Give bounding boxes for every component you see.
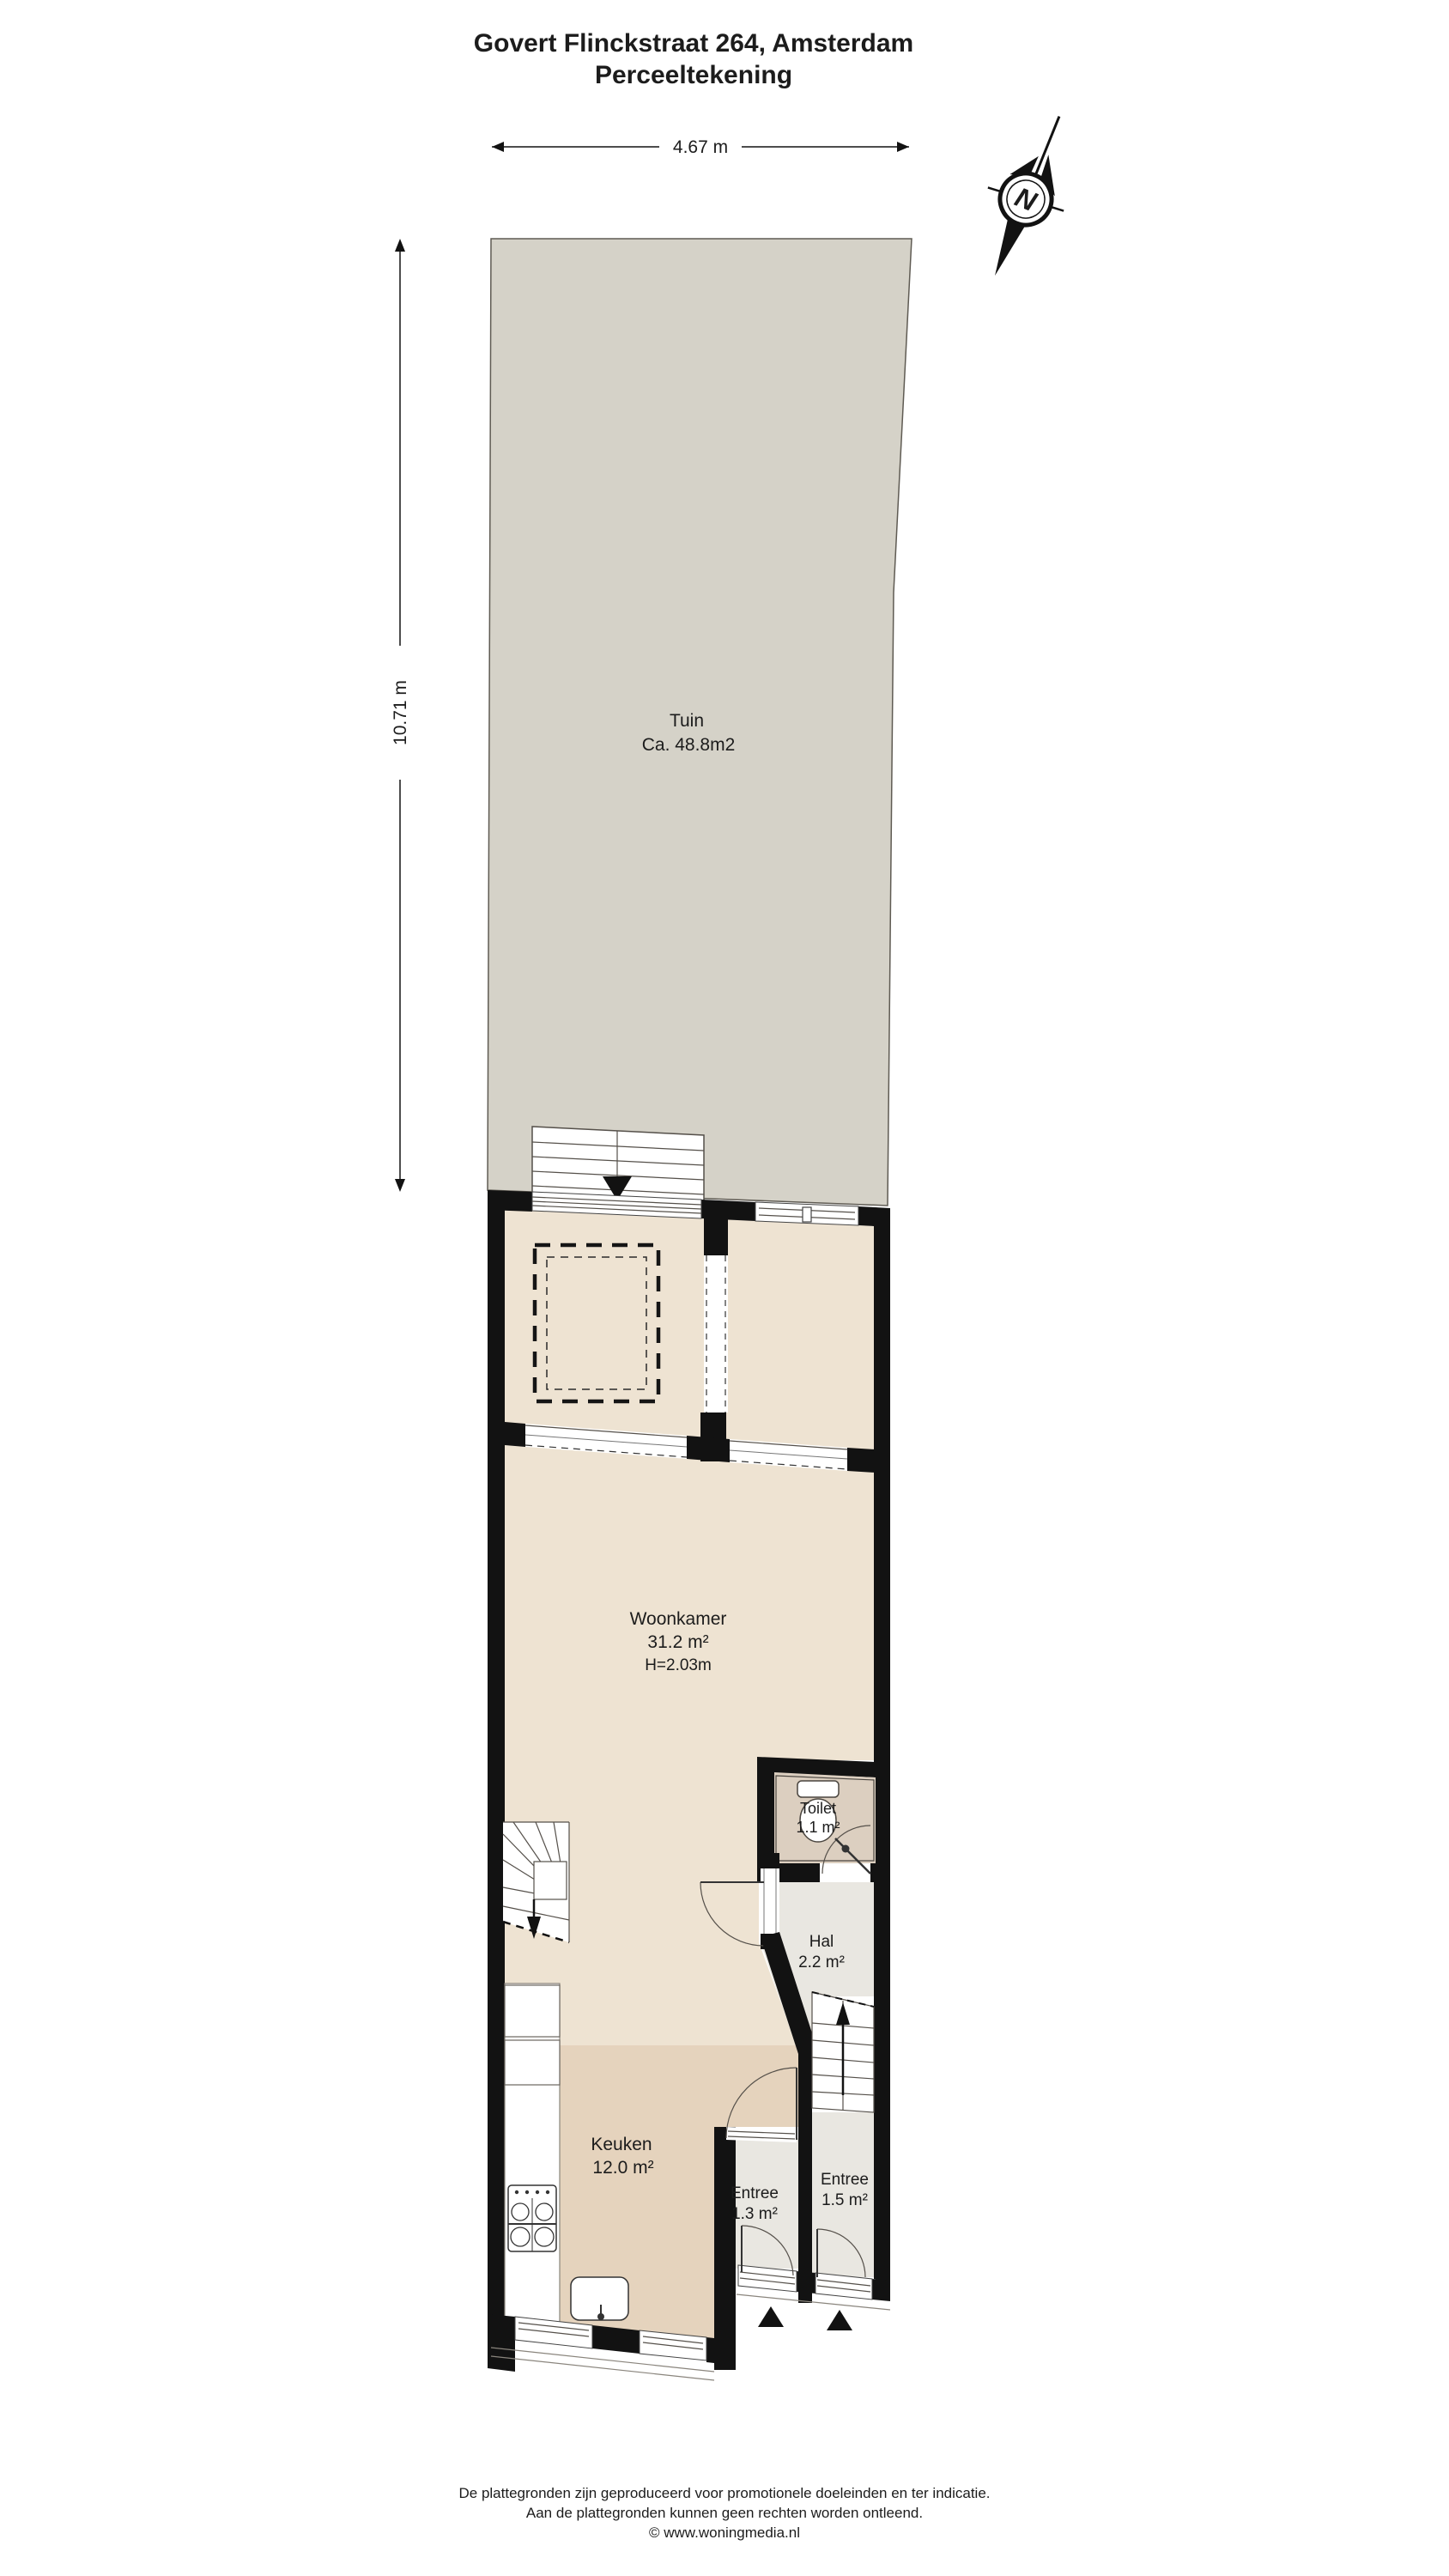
right-wall — [874, 1207, 890, 2282]
plot-depth-dimension: 10.71 m — [391, 239, 410, 1192]
toilet-name-label: Toilet — [800, 1800, 836, 1817]
stove-icon — [508, 2185, 556, 2251]
page-title: Govert Flinckstraat 264, Amsterdam — [474, 29, 913, 58]
entree-left-floor — [736, 2138, 798, 2269]
hal-name-label: Hal — [809, 1933, 834, 1951]
left-wall — [488, 1190, 505, 2318]
floor-plan-svg: Govert Flinckstraat 264, Amsterdam Perce… — [0, 0, 1449, 2576]
backroom-partition-wall — [700, 1212, 728, 1461]
entree-left-name-label: Entree — [731, 2184, 779, 2202]
north-compass-icon: N — [958, 101, 1095, 290]
entree-divider-wall — [798, 2045, 812, 2303]
disclaimer-line2: Aan de plattegronden kunnen geen rechten… — [526, 2505, 923, 2521]
disclaimer-line1: De plattegronden zijn geproduceerd voor … — [458, 2485, 990, 2501]
back-window — [755, 1202, 858, 1225]
toilet-area-label: 1.1 m² — [796, 1819, 840, 1836]
woonkamer-height-label: H=2.03m — [645, 1656, 712, 1674]
entree-right-area-label: 1.5 m² — [822, 2191, 868, 2209]
entrance-arrow-icon — [827, 2310, 852, 2330]
plot-width-label: 4.67 m — [673, 137, 728, 157]
keuken-entree-wall — [714, 2127, 736, 2370]
plot-depth-label: 10.71 m — [391, 680, 410, 745]
keuken-name-label: Keuken — [591, 2135, 652, 2154]
sink-icon — [571, 2277, 628, 2320]
arrow-left-icon — [492, 142, 504, 152]
stairs-up — [812, 1992, 874, 2112]
entree-right-name-label: Entree — [821, 2171, 869, 2189]
woonkamer-name-label: Woonkamer — [630, 1609, 727, 1629]
page-subtitle: Perceeltekening — [595, 61, 792, 89]
arrow-down-icon — [395, 1179, 405, 1192]
floorplan-page: Govert Flinckstraat 264, Amsterdam Perce… — [0, 0, 1449, 2576]
entree-left-area-label: 1.3 m² — [731, 2205, 778, 2223]
keuken-area-label: 12.0 m² — [592, 2158, 653, 2178]
plot-width-dimension: 4.67 m — [492, 137, 909, 157]
woonkamer-area-label: 31.2 m² — [647, 1632, 708, 1652]
garden-name-label: Tuin — [670, 711, 704, 731]
door-handle-icon — [842, 1845, 850, 1853]
winder-stairs — [503, 1822, 569, 1942]
arrow-up-icon — [395, 239, 405, 252]
copyright-line: © www.woningmedia.nl — [649, 2524, 800, 2541]
hal-area-label: 2.2 m² — [798, 1953, 845, 1971]
back-rooms-floor — [505, 1210, 876, 1451]
disclaimer: De plattegronden zijn geproduceerd voor … — [458, 2485, 990, 2541]
garden-area-label: Ca. 48.8m2 — [642, 735, 736, 755]
entrance-arrow-icon — [758, 2306, 784, 2327]
arrow-right-icon — [897, 142, 909, 152]
